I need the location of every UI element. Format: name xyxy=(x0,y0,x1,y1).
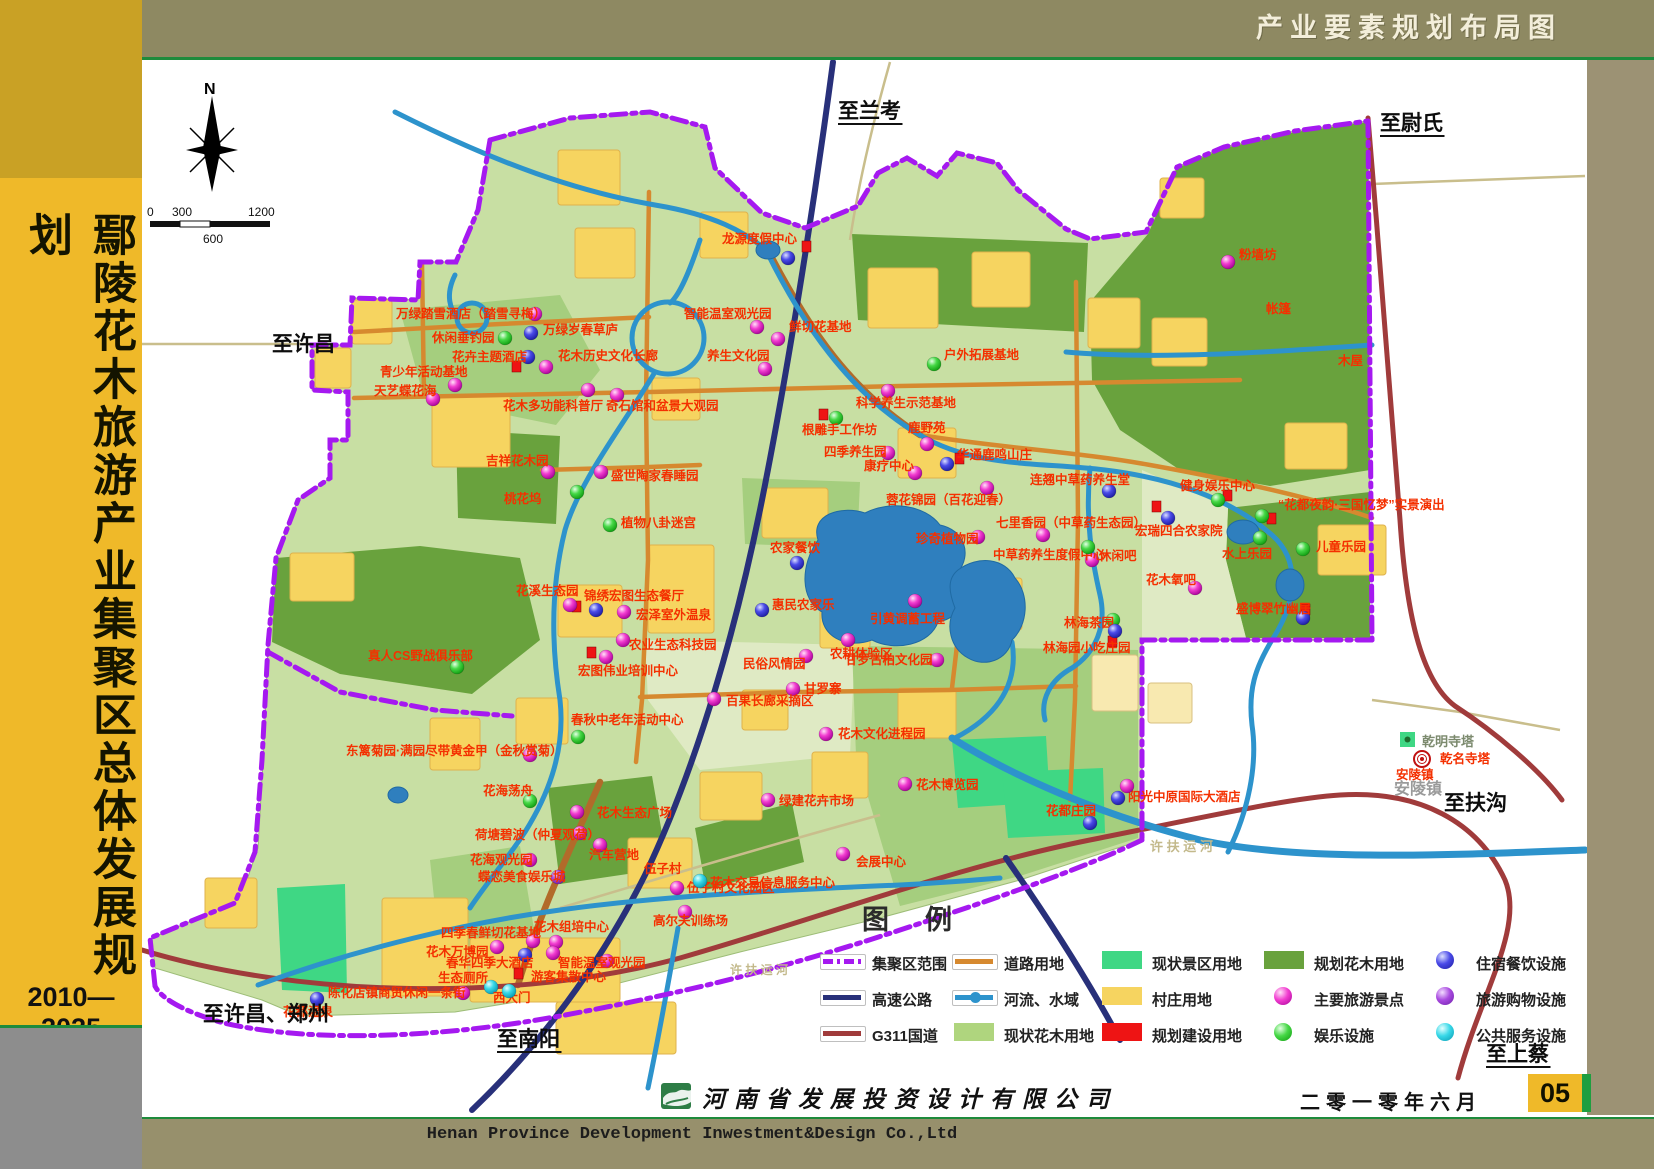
magenta-ball-marker xyxy=(670,881,684,895)
base-map-label: 许 扶 运 河 xyxy=(730,962,788,977)
poi-label: 鲜切花基地 xyxy=(789,319,852,334)
poi-label: 天艺蝶花海 xyxy=(374,383,437,398)
direction-label: 至兰考 xyxy=(838,99,901,123)
poi-label: 花木生态广场 xyxy=(597,805,672,820)
blue-ball-marker xyxy=(524,326,538,340)
poi-label: 陈化店镇商贸休闲一条街 xyxy=(328,985,466,1000)
poi-label: 真人CS野战俱乐部 xyxy=(368,648,473,663)
poi-label: 养生文化园 xyxy=(706,348,770,363)
blue-ball-marker xyxy=(1083,816,1097,830)
poi-label: 乾名寺塔 xyxy=(1440,751,1491,766)
poi-label: 儿童乐园 xyxy=(1315,539,1366,554)
green-ball-marker xyxy=(603,518,617,532)
poi-label: 休闲垂钓园 xyxy=(431,330,495,345)
company-name-en: Henan Province Development Inwestment&De… xyxy=(142,1125,1242,1144)
right-band xyxy=(1587,60,1654,1115)
magenta-ball-marker xyxy=(563,598,577,612)
poi-label: 根雕手工作坊 xyxy=(802,422,878,437)
compass-n-label: N xyxy=(204,81,216,98)
green-ball-marker xyxy=(498,331,512,345)
green-ball-marker xyxy=(571,730,585,744)
blue-ball-marker xyxy=(790,556,804,570)
poi-label: 宏图伟业培训中心 xyxy=(578,663,679,678)
poi-label: 花木多功能科普厅 xyxy=(503,398,604,413)
poi-label: 休闲吧 xyxy=(1098,548,1137,563)
poi-label: 植物八卦迷宫 xyxy=(620,515,696,530)
poi-label: 华通鹿鸣山庄 xyxy=(957,447,1033,462)
poi-label: 花海观光园 xyxy=(470,852,533,867)
poi-label: 会展中心 xyxy=(856,854,907,869)
magenta-ball-marker xyxy=(771,332,785,346)
magenta-ball-marker xyxy=(581,383,595,397)
sidebar-footer-block xyxy=(0,1028,142,1169)
base-map-label: 许 扶 运 河 xyxy=(1150,839,1213,854)
poi-label: 花木文化进程园 xyxy=(838,726,926,741)
direction-label: 至扶沟 xyxy=(1444,791,1507,815)
magenta-ball-marker xyxy=(761,793,775,807)
poi-label: 户外拓展基地 xyxy=(944,347,1020,362)
poi-label: 花木交易信息服务中心 xyxy=(710,875,836,890)
poi-label: 汽车营地 xyxy=(589,847,640,862)
green-ball-marker xyxy=(1081,540,1095,554)
map-canvas: N 0 300 1200 600 乾明寺塔安陵镇许 扶 运 河许 扶 运 河 龙… xyxy=(142,60,1587,1115)
top-band: 产业要素规划布局图 xyxy=(142,0,1654,57)
magenta-ball-marker xyxy=(898,777,912,791)
poi-label: 民俗风情园 xyxy=(743,656,806,671)
magenta-ball-marker xyxy=(570,805,584,819)
magenta-ball-marker xyxy=(750,320,764,334)
poi-label: 盛世陶家春睡园 xyxy=(611,468,699,483)
cyan-ball-marker xyxy=(693,874,707,888)
poi-label: 智能温室观光园 xyxy=(683,306,772,321)
poi-label: 花溪生态园 xyxy=(516,583,579,598)
poi-label: 青少年活动基地 xyxy=(380,364,468,379)
poi-label: 珍奇植物园 xyxy=(916,531,979,546)
blue-ball-marker xyxy=(755,603,769,617)
poi-label: 高尔夫训练场 xyxy=(653,913,728,928)
poi-label: 宏泽室外温泉 xyxy=(636,607,712,622)
blue-ball-marker xyxy=(940,457,954,471)
poi-label: 惠民农家乐 xyxy=(772,597,835,612)
poi-label: 万绿岁春草庐 xyxy=(542,322,619,337)
green-ball-marker xyxy=(1255,509,1269,523)
magenta-ball-marker xyxy=(841,633,855,647)
poi-label: 花木万博园 xyxy=(426,944,489,959)
magenta-ball-marker xyxy=(599,650,613,664)
blue-ball-marker xyxy=(1111,791,1125,805)
blue-ball-marker xyxy=(1108,624,1122,638)
green-ball-marker xyxy=(927,357,941,371)
poi-label: 粉墙坊 xyxy=(1239,247,1277,262)
direction-label: 至许昌、郑州 xyxy=(203,1002,329,1026)
magenta-ball-marker xyxy=(758,362,772,376)
poi-label: 花海荡舟 xyxy=(483,783,534,798)
bottom-band: Henan Province Development Inwestment&De… xyxy=(142,1119,1654,1169)
magenta-ball-marker xyxy=(1036,528,1050,542)
scale-0: 0 xyxy=(147,205,154,219)
poi-label: 花卉主题酒店 xyxy=(452,349,528,364)
page-title: 产业要素规划布局图 xyxy=(1256,0,1562,57)
planned-construction-marker xyxy=(587,647,596,658)
poi-label: 帐篷 xyxy=(1266,301,1292,316)
magenta-ball-marker xyxy=(490,940,504,954)
cyan-ball-marker xyxy=(502,984,516,998)
poi-label: 绿建花卉市场 xyxy=(779,793,854,808)
poi-label: 七里香园（中草药生态园） xyxy=(996,515,1146,530)
magenta-ball-marker xyxy=(539,360,553,374)
green-ball-marker xyxy=(1296,542,1310,556)
poi-label: 连翘中草药养生堂 xyxy=(1030,472,1130,487)
poi-label: 花木组培中心 xyxy=(534,919,610,934)
direction-label: 至上蔡 xyxy=(1486,1043,1549,1066)
poi-label: 健身娱乐中心 xyxy=(1180,478,1256,493)
magenta-ball-marker xyxy=(616,633,630,647)
poi-label: 农家餐饮 xyxy=(769,540,821,555)
poi-label: 花都庄园 xyxy=(1046,803,1096,818)
magenta-ball-marker xyxy=(1120,779,1134,793)
scenic-square-marker xyxy=(1400,732,1415,747)
poi-label: 桃花坞 xyxy=(504,491,542,506)
poi-label: 四季养生园 xyxy=(824,444,887,459)
poi-label: 水上乐园 xyxy=(1222,546,1272,561)
magenta-ball-marker xyxy=(617,605,631,619)
green-ball-marker xyxy=(570,485,584,499)
blue-ball-marker xyxy=(781,251,795,265)
sidebar: 鄢陵花木旅游产业集聚区总体发展规划 2010—2025 xyxy=(0,0,142,1169)
poi-label: 蓉花锦园（百花迎春） xyxy=(886,492,1011,507)
poi-label: 智能温室观光园 xyxy=(557,955,646,970)
poi-label: 百果长廊采摘区 xyxy=(726,693,814,708)
scale-600: 600 xyxy=(203,232,223,246)
scale-300: 300 xyxy=(172,205,192,219)
poi-label: 龙源度假中心 xyxy=(721,231,798,246)
page-number: 05 xyxy=(1528,1074,1591,1112)
sidebar-top-block xyxy=(0,0,142,178)
poi-label: 安陵镇 xyxy=(1396,767,1434,782)
magenta-ball-marker xyxy=(448,378,462,392)
poi-label: 奇石馆和盆景大观园 xyxy=(606,398,719,413)
poi-label: 引黄调蓄工程 xyxy=(870,611,946,626)
magenta-ball-marker xyxy=(920,437,934,451)
poi-label: 康疗中心 xyxy=(864,458,915,473)
poi-label: 盛博翠竹幽居 xyxy=(1236,601,1311,616)
poi-label: 春秋中老年活动中心 xyxy=(570,712,684,727)
magenta-ball-marker xyxy=(819,727,833,741)
poi-label: “花都夜韵·三国忆梦”实景演出 xyxy=(1278,497,1445,512)
poi-label: 锦绣宏图生态餐厅 xyxy=(584,588,685,603)
poi-label: 木屋 xyxy=(1337,353,1364,368)
poi-label: 万绿踏雪酒店（踏雪寻梅） xyxy=(395,306,546,321)
company-name-cn: 河南省发展投资设计有限公司 xyxy=(702,1080,1118,1114)
poi-label: 花木历史文化长廊 xyxy=(558,348,659,363)
magenta-ball-marker xyxy=(707,692,721,706)
magenta-ball-marker xyxy=(836,847,850,861)
magenta-ball-marker xyxy=(594,465,608,479)
green-ball-marker xyxy=(1253,531,1267,545)
planned-construction-marker xyxy=(802,241,811,252)
direction-label: 至尉氏 xyxy=(1380,112,1443,135)
poi-label: 宏瑞四合农家院 xyxy=(1135,523,1223,538)
direction-label: 至许昌 xyxy=(272,332,335,356)
poi-label: 东篱菊园·满园尽带黄金甲（金秋赏菊） xyxy=(346,743,563,758)
poi-label: 蝶恋美食娱乐城 xyxy=(478,869,566,884)
magenta-ball-marker xyxy=(546,946,560,960)
blue-ball-marker xyxy=(589,603,603,617)
green-ball-marker xyxy=(1211,493,1225,507)
blue-ball-marker xyxy=(1161,511,1175,525)
company-line: 河南省发展投资设计有限公司 xyxy=(660,1080,1118,1114)
poi-label: 吉祥花木园 xyxy=(486,453,549,468)
poi-label: 林海茶园 xyxy=(1064,615,1114,630)
poi-label: 科学养生示范基地 xyxy=(856,395,957,410)
poi-label: 花木氧吧 xyxy=(1146,572,1197,587)
poi-label: 荷塘碧波（仲夏观荷） xyxy=(474,827,600,842)
planning-map-page: 鄢陵花木旅游产业集聚区总体发展规划 2010—2025 产业要素规划布局图 xyxy=(0,0,1654,1169)
poi-label: 农耕体验区 xyxy=(829,646,893,661)
map-date: 二零一零年六月 xyxy=(1300,1086,1482,1115)
planned-construction-marker xyxy=(1152,501,1161,512)
magenta-ball-marker xyxy=(1221,255,1235,269)
planned-construction-marker xyxy=(819,409,828,420)
base-map-label: 乾明寺塔 xyxy=(1422,734,1475,749)
poi-label: 鹿野苑 xyxy=(908,420,946,435)
poi-label: 农业生态科技园 xyxy=(628,637,717,652)
scale-1200: 1200 xyxy=(248,205,275,219)
company-logo xyxy=(660,1082,694,1112)
poi-label: 花木博览园 xyxy=(916,777,979,792)
poi-label: 阳光中原国际大酒店 xyxy=(1128,789,1241,804)
pagoda-target-marker xyxy=(1414,751,1430,767)
poi-label: 游客集散中心 xyxy=(531,969,607,984)
poi-label: 四季春鲜切花基地 xyxy=(441,925,542,940)
poi-label: 生态厕所 xyxy=(438,970,489,985)
poi-label: 伍子村 xyxy=(643,861,682,876)
poi-label: 林海园小吃庄园 xyxy=(1043,640,1131,655)
plan-title-vertical: 鄢陵花木旅游产业集聚区总体发展规划 xyxy=(0,212,142,1012)
magenta-ball-marker xyxy=(908,594,922,608)
direction-label: 至南阳 xyxy=(497,1027,560,1051)
